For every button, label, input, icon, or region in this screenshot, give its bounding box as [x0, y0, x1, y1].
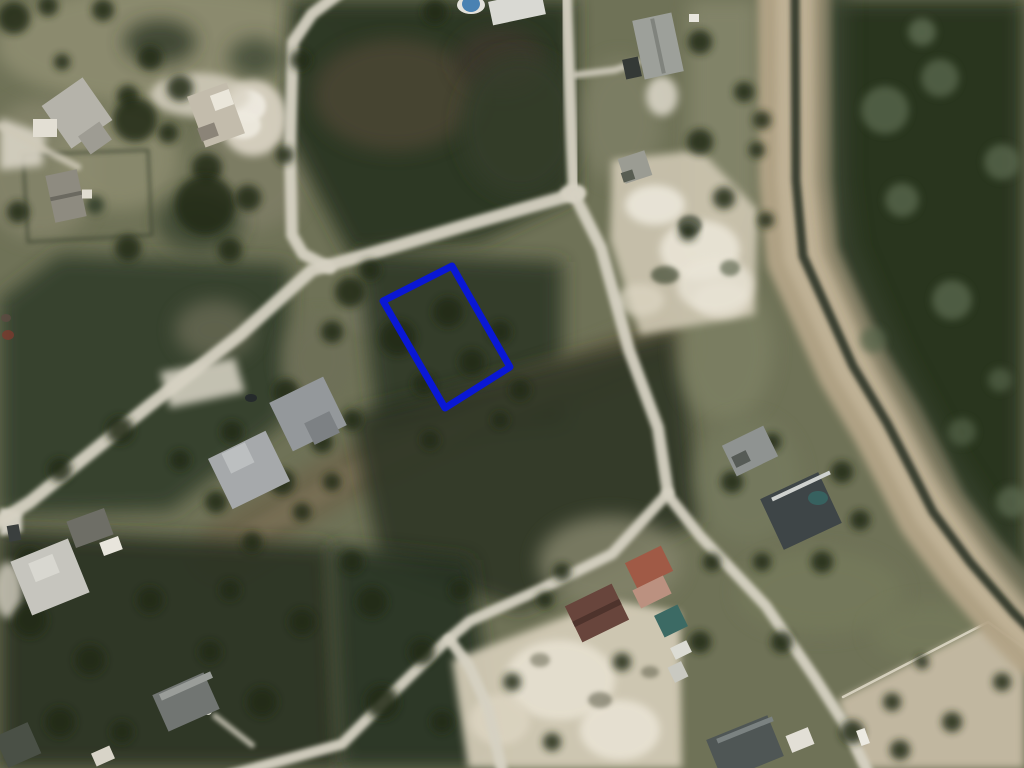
moss-patch: [861, 86, 909, 134]
tree: [890, 740, 910, 760]
tree: [341, 551, 363, 573]
tree: [175, 175, 235, 235]
tree: [749, 142, 765, 158]
tree: [503, 673, 521, 691]
tree: [409, 639, 435, 665]
tree: [553, 563, 571, 581]
tree: [753, 553, 771, 571]
tree: [771, 631, 793, 653]
shrub-red: [2, 330, 14, 340]
tree: [323, 473, 341, 491]
tree: [289, 609, 315, 635]
forest-brown-patch: [313, 39, 477, 151]
tree: [158, 123, 178, 143]
tree: [537, 592, 553, 608]
tree: [689, 631, 711, 653]
tree: [54, 54, 70, 70]
tree: [290, 50, 310, 70]
tree: [106, 416, 134, 444]
tree: [703, 553, 721, 571]
tree: [115, 235, 141, 261]
tree: [357, 587, 387, 617]
sand-patch: [580, 700, 660, 760]
debris: [641, 666, 659, 678]
tree: [942, 712, 962, 732]
tree: [113, 98, 157, 142]
tree: [48, 458, 72, 482]
satellite-canvas: [0, 0, 1024, 768]
tree: [92, 0, 114, 21]
tree: [613, 653, 631, 671]
tree: [433, 297, 463, 327]
debris: [530, 653, 550, 667]
swimming-pool: [808, 491, 828, 505]
shed-roof: [82, 190, 92, 199]
forest-block: [460, 53, 580, 197]
tree: [431, 711, 453, 733]
moss-patch: [921, 59, 959, 97]
tree: [753, 111, 771, 129]
tree: [321, 321, 343, 343]
tree: [86, 196, 104, 214]
moss-patch: [885, 183, 919, 217]
tree: [276, 146, 294, 164]
moss-patch: [860, 327, 886, 353]
tree: [492, 412, 508, 428]
tree: [137, 587, 163, 613]
tree: [510, 380, 530, 400]
forest-patch: [229, 38, 281, 78]
tree: [247, 687, 277, 717]
tree: [360, 260, 380, 280]
tree: [679, 223, 697, 241]
tree: [713, 187, 735, 209]
tree: [221, 421, 243, 443]
tree: [459, 349, 485, 375]
tree: [138, 46, 162, 70]
tree: [687, 129, 713, 155]
tree: [850, 510, 870, 530]
tree: [811, 551, 833, 573]
shrub: [720, 260, 740, 276]
satellite-map-image: [0, 0, 1024, 768]
tree: [75, 645, 105, 675]
tree: [293, 503, 311, 521]
tree: [421, 431, 439, 449]
moss-patch: [948, 418, 976, 446]
tree: [111, 721, 133, 743]
tree: [335, 277, 365, 307]
tree: [45, 707, 75, 737]
tree: [688, 30, 712, 54]
tree: [543, 733, 561, 751]
tree: [342, 410, 362, 430]
tree: [242, 532, 262, 552]
sand-patch: [625, 185, 685, 225]
tree: [423, 0, 447, 24]
tree: [450, 580, 470, 600]
tree: [993, 673, 1011, 691]
tree: [205, 491, 227, 513]
tree: [220, 580, 240, 600]
moss-patch: [908, 18, 936, 46]
debris: [588, 692, 612, 708]
tree: [235, 185, 261, 211]
sand-patch: [646, 76, 678, 116]
moss-patch: [984, 144, 1020, 180]
moss-patch: [988, 368, 1012, 392]
tree: [915, 655, 929, 669]
tree: [758, 212, 774, 228]
tree: [734, 82, 754, 102]
tree: [170, 450, 190, 470]
shrub: [651, 266, 679, 284]
shed-roof: [689, 14, 699, 22]
shed-roof: [33, 119, 57, 137]
road-north-vertical: [566, 0, 574, 192]
tree: [883, 693, 901, 711]
moss-patch: [932, 280, 972, 320]
car: [245, 394, 257, 402]
tree: [365, 685, 399, 719]
tree: [7, 201, 29, 223]
tree: [199, 641, 221, 663]
tree: [218, 238, 242, 262]
tree: [831, 461, 853, 483]
shrub-red: [1, 314, 11, 322]
sand-patch: [677, 257, 753, 313]
